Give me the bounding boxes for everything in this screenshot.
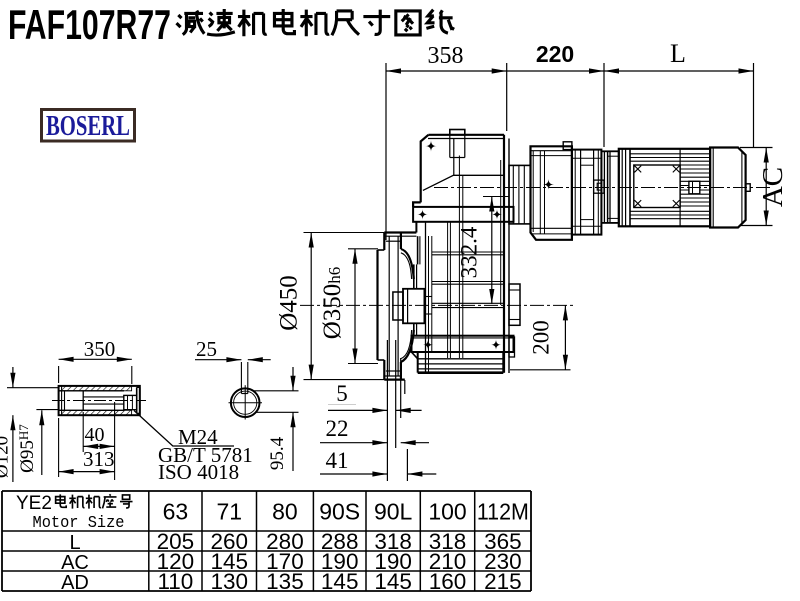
svg-text:63: 63 bbox=[163, 499, 189, 525]
svg-text:Motor Size: Motor Size bbox=[33, 514, 125, 533]
svg-text:YE2: YE2 bbox=[16, 493, 52, 514]
svg-text:215: 215 bbox=[484, 569, 522, 594]
svg-text:22: 22 bbox=[326, 416, 349, 441]
svg-text:90S: 90S bbox=[319, 499, 360, 525]
svg-text:95.4: 95.4 bbox=[267, 436, 288, 470]
svg-text:313: 313 bbox=[83, 447, 115, 471]
svg-text:200: 200 bbox=[529, 320, 554, 355]
svg-text:358: 358 bbox=[428, 43, 464, 69]
svg-text:80: 80 bbox=[272, 499, 298, 525]
svg-text:40: 40 bbox=[85, 424, 105, 446]
svg-text:41: 41 bbox=[326, 448, 349, 473]
svg-text:AC: AC bbox=[757, 167, 789, 207]
svg-text:5: 5 bbox=[336, 381, 348, 406]
svg-text:FAF107R77: FAF107R77 bbox=[8, 1, 171, 48]
svg-text:145: 145 bbox=[321, 569, 359, 594]
svg-text:130: 130 bbox=[210, 569, 248, 594]
svg-text:145: 145 bbox=[374, 569, 412, 594]
svg-text:71: 71 bbox=[216, 499, 242, 525]
svg-text:350: 350 bbox=[84, 337, 116, 361]
svg-text:220: 220 bbox=[536, 41, 574, 67]
svg-text:332.4: 332.4 bbox=[457, 226, 482, 278]
svg-text:L: L bbox=[69, 532, 80, 554]
svg-text:112M: 112M bbox=[477, 499, 529, 525]
svg-text:135: 135 bbox=[266, 569, 304, 594]
svg-text:ISO 4018: ISO 4018 bbox=[158, 460, 239, 484]
svg-text:Ø120: Ø120 bbox=[0, 436, 13, 478]
svg-text:AD: AD bbox=[61, 572, 89, 594]
svg-text:110: 110 bbox=[157, 569, 193, 594]
svg-text:25: 25 bbox=[196, 337, 217, 361]
svg-text:100: 100 bbox=[428, 499, 466, 525]
svg-text:90L: 90L bbox=[374, 499, 413, 525]
svg-text:L: L bbox=[670, 39, 686, 68]
svg-text:Ø450: Ø450 bbox=[276, 275, 303, 331]
svg-text:BOSERL: BOSERL bbox=[46, 110, 130, 142]
svg-text:AC: AC bbox=[61, 552, 89, 574]
svg-text:160: 160 bbox=[429, 569, 467, 594]
